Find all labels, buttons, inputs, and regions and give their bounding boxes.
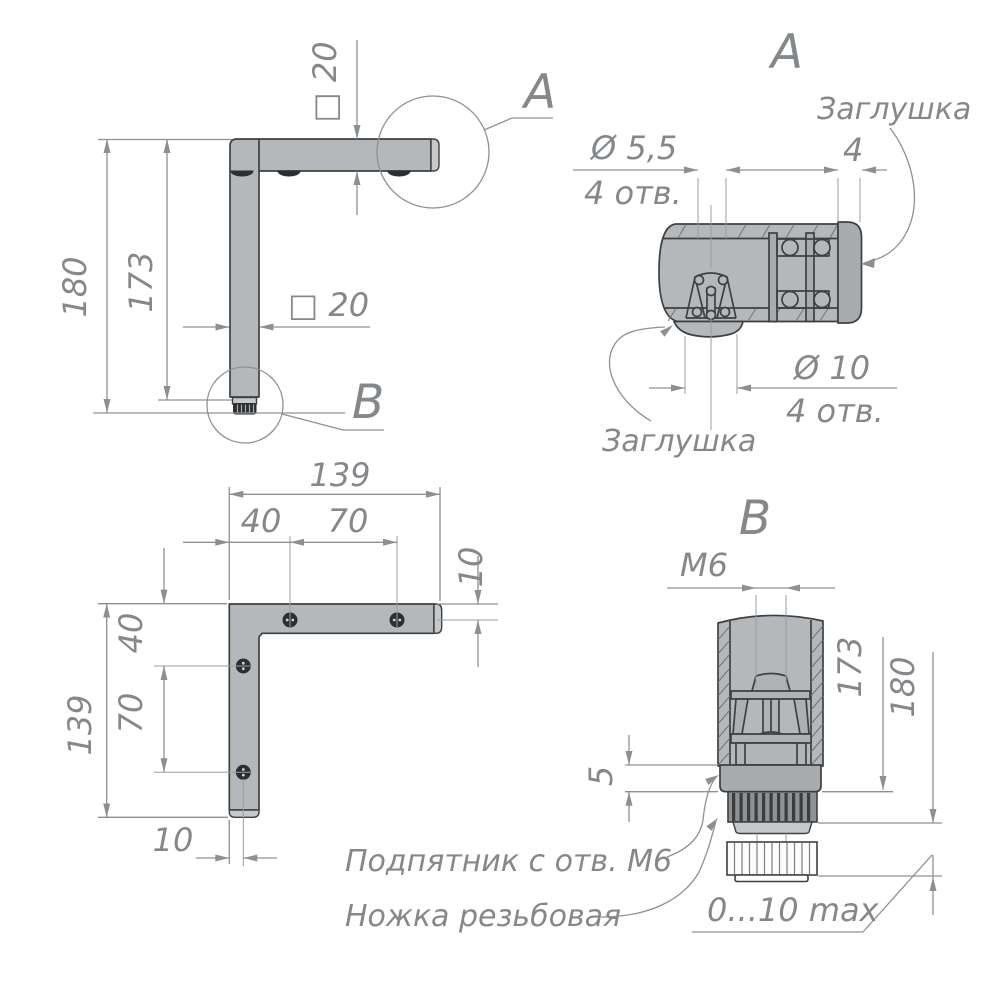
plan-view: 139 40 70 10 139 40 70 10 — [61, 456, 498, 866]
dim-hole-c: 40 — [112, 613, 150, 654]
screw-holes — [236, 613, 404, 779]
end-cap-section — [838, 222, 862, 323]
dim-total-b: 180 — [884, 656, 922, 717]
furniture-leg-drawing: 180 173 □ 20 □ 20 A B A — [0, 0, 1000, 1000]
detail-a-view: A — [573, 25, 971, 459]
dim-collar-height: 5 — [582, 766, 620, 786]
dim-hole-qty: 4 отв. — [584, 174, 682, 212]
dim-adjust-range: 0...10 max — [707, 891, 880, 929]
dim-hole-dia: Ø 5,5 — [589, 129, 677, 167]
dim-hole-d: 70 — [112, 693, 150, 734]
foot-pad-collar — [720, 765, 821, 792]
main-side-view: 180 173 □ 20 □ 20 A B — [56, 40, 556, 443]
label-plug-top: Заглушка — [817, 92, 971, 127]
dim-edge-right: 10 — [452, 547, 490, 588]
callout-a: A — [521, 65, 556, 120]
bracket-plan-body — [229, 604, 434, 810]
arm-end-cap — [431, 139, 439, 171]
dim-height-leg: 173 — [122, 251, 160, 312]
plug-bump — [278, 171, 300, 176]
dim-hole-a: 40 — [241, 502, 282, 540]
plug-bump — [388, 171, 410, 176]
dim-leg-b: 173 — [831, 636, 869, 697]
dim-arm-section: □ 20 — [306, 41, 344, 122]
dim-cap-thickness: 4 — [843, 131, 863, 169]
dim-leg-section: □ 20 — [288, 286, 369, 324]
dim-width: 139 — [309, 456, 370, 494]
detail-a-title: A — [768, 25, 803, 80]
dim-edge-bottom: 10 — [153, 821, 194, 859]
callout-b: B — [352, 375, 384, 430]
label-foot-pad: Подпятник с отв. М6 — [345, 844, 672, 879]
dim-plug-dia: Ø 10 — [792, 349, 870, 387]
bracket-side-body — [230, 139, 431, 397]
label-threaded-leg: Ножка резьбовая — [345, 899, 621, 934]
plan-arm-cap — [434, 604, 442, 633]
adjusting-nut — [727, 842, 817, 882]
plug-dome — [674, 322, 743, 337]
dim-plug-qty: 4 отв. — [786, 392, 884, 430]
dim-thread: М6 — [680, 546, 728, 584]
dim-height: 139 — [61, 694, 99, 755]
dim-height-total: 180 — [56, 256, 94, 317]
dim-hole-b: 70 — [328, 502, 369, 540]
technical-drawing-page: 180 173 □ 20 □ 20 A B A — [0, 0, 1000, 1000]
label-plug-bottom: Заглушка — [602, 424, 756, 459]
threaded-leg-ribbed — [728, 792, 817, 834]
plan-leg-cap — [229, 810, 259, 817]
detail-b-view: B — [345, 491, 942, 934]
detail-b-title: B — [739, 491, 771, 546]
